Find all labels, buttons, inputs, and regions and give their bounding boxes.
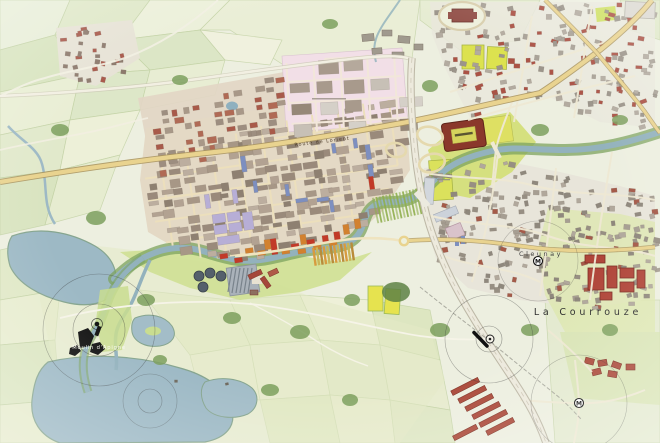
building [628, 252, 634, 256]
building [475, 46, 481, 50]
building [634, 111, 638, 115]
building [218, 137, 225, 144]
building [526, 58, 531, 63]
building [207, 242, 218, 250]
building [191, 225, 201, 232]
building [164, 199, 173, 207]
building [460, 61, 467, 67]
label-moulin-apigne: Moulin d'Apigné [72, 344, 126, 351]
building [522, 195, 527, 199]
building [78, 42, 83, 46]
building [220, 193, 228, 198]
building [195, 185, 207, 193]
building [291, 103, 311, 115]
building [308, 198, 317, 205]
building [541, 191, 547, 197]
building [494, 275, 499, 280]
building [553, 41, 557, 47]
building [504, 42, 509, 46]
building [510, 23, 515, 28]
building [592, 74, 596, 78]
metro-station-courrouze: M [575, 399, 584, 408]
building [574, 10, 582, 16]
building [568, 32, 574, 36]
pond-island [145, 327, 161, 336]
building [83, 30, 88, 35]
stadium [441, 118, 486, 152]
building [490, 228, 497, 232]
building [275, 77, 284, 83]
building [174, 380, 177, 383]
building [646, 260, 651, 264]
building [323, 149, 330, 157]
building [230, 249, 240, 255]
building [586, 225, 591, 230]
building [472, 207, 478, 212]
building [283, 201, 291, 207]
building [266, 87, 274, 92]
building [617, 3, 622, 7]
label-la-courrouze: La Courrouze [534, 307, 642, 318]
building [354, 218, 361, 229]
building [619, 232, 626, 238]
building [207, 136, 217, 144]
building [198, 139, 205, 146]
building [183, 107, 189, 114]
building [60, 38, 67, 42]
building [519, 209, 525, 214]
building [648, 227, 653, 232]
building [314, 169, 323, 178]
building [558, 213, 564, 218]
building [632, 25, 637, 30]
building [342, 175, 350, 183]
building [156, 144, 164, 150]
building [601, 76, 606, 81]
building [483, 34, 489, 39]
building [93, 49, 97, 53]
building [537, 269, 542, 272]
building [260, 215, 273, 225]
building [445, 220, 450, 225]
building [294, 124, 313, 137]
illegible-annotation [312, 98, 346, 100]
building [438, 178, 443, 183]
building [255, 86, 265, 93]
building [186, 139, 193, 144]
building [149, 183, 157, 190]
building [629, 188, 636, 192]
building [280, 166, 288, 171]
building [652, 266, 657, 271]
building [564, 101, 571, 107]
building [324, 224, 332, 232]
building [86, 78, 91, 83]
label-cleunay: Cleunay [519, 250, 563, 258]
building [95, 54, 100, 57]
building [264, 239, 271, 250]
building [640, 225, 644, 229]
building [270, 176, 279, 184]
building [259, 113, 267, 120]
building [582, 300, 588, 304]
building [618, 56, 624, 62]
building [607, 91, 612, 96]
building [317, 81, 333, 94]
building [524, 200, 529, 206]
building [285, 211, 294, 218]
building [510, 10, 515, 16]
building [256, 105, 262, 111]
building [336, 146, 350, 155]
building [554, 277, 559, 281]
building [297, 209, 305, 214]
building [512, 277, 517, 283]
building [476, 216, 482, 221]
building [228, 222, 242, 233]
metro-m-icon: M [576, 400, 582, 407]
building [533, 190, 539, 195]
building [303, 152, 311, 158]
building [203, 233, 215, 241]
building [570, 44, 575, 50]
building [225, 109, 235, 116]
building [469, 182, 476, 188]
building [288, 154, 298, 161]
building [75, 73, 79, 77]
building [537, 31, 542, 34]
building [251, 130, 257, 136]
building [638, 36, 645, 41]
building [212, 213, 226, 224]
building [65, 51, 71, 56]
building [444, 60, 450, 66]
building [492, 209, 497, 214]
building [207, 250, 216, 257]
building [198, 131, 204, 137]
building [320, 102, 338, 115]
building [258, 196, 267, 204]
building [63, 64, 68, 68]
building [641, 68, 647, 72]
building [165, 127, 174, 134]
building [219, 253, 228, 259]
building [585, 110, 591, 114]
building [161, 110, 168, 116]
building [290, 163, 302, 172]
building [612, 55, 617, 60]
building [185, 123, 192, 129]
building [508, 161, 516, 168]
building [453, 57, 457, 62]
building [343, 224, 350, 235]
building [492, 204, 497, 208]
building [264, 77, 274, 83]
building [242, 139, 252, 145]
building [436, 32, 443, 38]
building [533, 234, 539, 239]
building [463, 70, 469, 74]
building [121, 70, 127, 75]
building [216, 119, 224, 126]
building [549, 70, 553, 75]
building [617, 86, 622, 91]
sports-field [368, 286, 383, 311]
illegible-annotation [437, 179, 450, 180]
building [300, 234, 307, 245]
building [465, 210, 470, 215]
building [322, 205, 330, 213]
building [535, 223, 541, 229]
building [499, 54, 505, 58]
building [513, 201, 519, 207]
oval-campus [439, 2, 485, 30]
building [538, 66, 544, 72]
building [609, 206, 614, 212]
building [500, 80, 507, 85]
building [213, 224, 227, 235]
building [585, 214, 590, 218]
building [262, 226, 269, 231]
building [236, 108, 244, 115]
building [344, 193, 353, 201]
station-marker-dot [489, 338, 492, 341]
building [160, 170, 167, 177]
building [530, 42, 536, 47]
building [483, 29, 487, 34]
building [441, 48, 446, 53]
building [490, 284, 495, 289]
building [514, 38, 520, 42]
building [214, 111, 222, 117]
building [78, 77, 83, 82]
building [192, 105, 199, 111]
building [478, 180, 485, 185]
building [578, 109, 584, 115]
building [268, 119, 277, 126]
building [629, 302, 635, 306]
building [174, 199, 184, 207]
building [611, 221, 615, 226]
building [624, 69, 629, 73]
building [486, 274, 491, 278]
building [328, 176, 338, 183]
building [500, 207, 506, 213]
building [269, 128, 275, 134]
building [648, 284, 652, 288]
building [498, 42, 504, 46]
building [233, 90, 242, 97]
building [534, 55, 539, 61]
building [539, 200, 545, 204]
building [475, 196, 480, 199]
building [546, 14, 552, 19]
building [482, 197, 489, 203]
building [282, 172, 296, 181]
building [499, 196, 504, 200]
building [314, 150, 324, 159]
building [508, 58, 515, 64]
building [359, 145, 366, 153]
building [564, 38, 570, 42]
building [557, 285, 562, 291]
building [527, 79, 532, 84]
building [636, 66, 643, 69]
building [277, 100, 286, 106]
building [340, 164, 350, 173]
building [102, 43, 106, 48]
building [507, 293, 512, 297]
building [199, 157, 207, 162]
building [298, 248, 307, 254]
building [276, 92, 285, 99]
building [558, 51, 563, 56]
building [147, 192, 158, 200]
building [344, 80, 365, 95]
building [643, 54, 649, 59]
building [546, 175, 553, 180]
building [339, 157, 346, 164]
building [623, 224, 630, 230]
metro-m-icon: M [535, 258, 541, 265]
building [188, 215, 200, 224]
building [484, 279, 488, 283]
building [234, 257, 243, 263]
building [227, 117, 235, 123]
building [596, 90, 600, 94]
building [578, 233, 585, 238]
building [268, 102, 278, 109]
building [95, 59, 101, 64]
building [255, 97, 262, 102]
building [180, 246, 193, 256]
building [163, 119, 170, 124]
building [563, 207, 570, 213]
building [153, 128, 161, 135]
building [644, 294, 650, 298]
building [290, 83, 310, 93]
building [553, 205, 560, 211]
building [174, 117, 184, 124]
building [227, 211, 241, 222]
building [214, 101, 223, 108]
building [225, 382, 229, 385]
building [375, 150, 382, 156]
building [250, 122, 258, 128]
building [309, 207, 322, 215]
building [343, 185, 351, 191]
building [202, 224, 214, 232]
building [558, 201, 564, 205]
building [556, 296, 562, 301]
building [221, 182, 229, 191]
building [345, 100, 362, 112]
building [170, 179, 181, 189]
building [633, 292, 638, 298]
building [358, 212, 368, 219]
building [628, 42, 634, 45]
building [470, 232, 474, 235]
building [178, 235, 190, 245]
building [173, 188, 183, 195]
building [286, 230, 295, 236]
building [163, 209, 175, 219]
building [611, 188, 617, 193]
building [327, 168, 336, 175]
building [179, 158, 191, 167]
building [514, 64, 520, 69]
building [475, 66, 480, 71]
building [319, 177, 326, 183]
masterplan-map: M M Route de Lorient Cleunay La Courrouz… [0, 0, 660, 443]
building [637, 203, 643, 207]
building [475, 50, 481, 55]
roundabout [400, 237, 408, 245]
building [513, 175, 517, 179]
building [524, 87, 528, 90]
building [452, 68, 457, 73]
building [451, 192, 458, 197]
building [475, 97, 481, 103]
building [465, 170, 472, 177]
building [588, 101, 594, 107]
building [269, 112, 278, 119]
building [565, 219, 570, 223]
building [575, 298, 580, 302]
building [356, 193, 364, 200]
building [245, 248, 254, 254]
building [194, 121, 200, 127]
building [599, 100, 603, 104]
building [446, 43, 452, 48]
building [469, 189, 476, 194]
building [172, 109, 178, 116]
building [577, 198, 581, 203]
building [191, 233, 199, 240]
building [648, 51, 653, 54]
building [287, 221, 300, 231]
building [238, 125, 247, 131]
building [539, 6, 545, 11]
building [277, 146, 284, 155]
building [500, 88, 506, 94]
building [593, 100, 598, 104]
building [268, 184, 277, 190]
building [258, 204, 272, 214]
map-canvas: M M Route de Lorient Cleunay La Courrouz… [0, 0, 660, 443]
point-marker [95, 322, 100, 327]
building [371, 78, 390, 90]
building [223, 93, 229, 100]
building [590, 25, 596, 29]
building [251, 236, 260, 245]
building [634, 90, 638, 94]
building [207, 164, 218, 173]
building [614, 15, 621, 21]
